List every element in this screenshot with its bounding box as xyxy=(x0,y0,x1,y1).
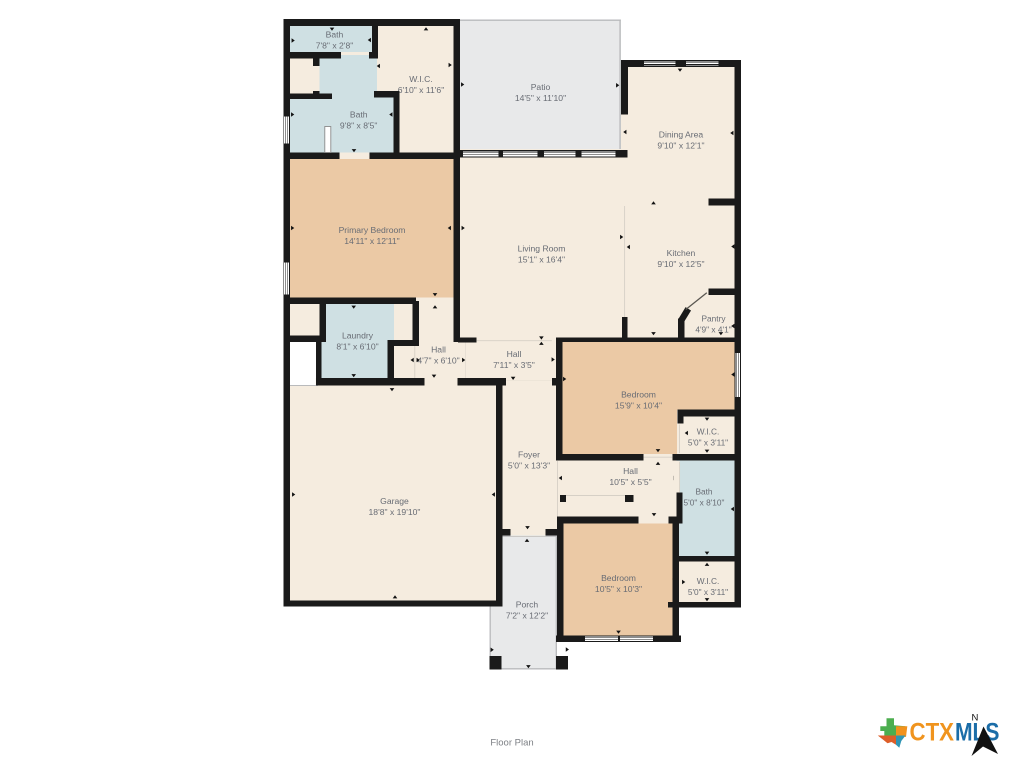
svg-text:CTX: CTX xyxy=(910,719,955,747)
svg-text:5'0" x 13'3": 5'0" x 13'3" xyxy=(508,460,550,470)
svg-text:Bath: Bath xyxy=(326,30,344,40)
svg-text:15'9" x 10'4": 15'9" x 10'4" xyxy=(615,400,662,410)
svg-text:W.I.C.: W.I.C. xyxy=(697,576,720,586)
svg-text:W.I.C.: W.I.C. xyxy=(409,74,432,84)
svg-text:Porch: Porch xyxy=(516,600,539,610)
svg-text:Pantry: Pantry xyxy=(702,314,727,324)
svg-text:7'2" x 12'2": 7'2" x 12'2" xyxy=(506,610,548,620)
svg-text:9'10" x 12'1": 9'10" x 12'1" xyxy=(657,140,704,150)
svg-text:Kitchen: Kitchen xyxy=(667,248,696,258)
svg-text:Bedroom: Bedroom xyxy=(601,573,636,583)
svg-text:18'8" x 19'10": 18'8" x 19'10" xyxy=(369,507,421,517)
svg-text:6'10" x 11'6": 6'10" x 11'6" xyxy=(398,85,445,95)
svg-text:W.I.C.: W.I.C. xyxy=(697,427,720,437)
svg-text:Foyer: Foyer xyxy=(518,450,540,460)
svg-text:Bath: Bath xyxy=(350,110,368,120)
svg-text:Garage: Garage xyxy=(380,496,409,506)
svg-text:4'7" x 6'10": 4'7" x 6'10" xyxy=(417,355,459,365)
svg-text:Primary Bedroom: Primary Bedroom xyxy=(339,225,406,235)
svg-text:5'0" x 3'11": 5'0" x 3'11" xyxy=(688,587,728,597)
svg-text:10'5" x 5'5": 10'5" x 5'5" xyxy=(609,477,651,487)
svg-text:9'8" x 8'5": 9'8" x 8'5" xyxy=(340,120,378,130)
svg-text:4'9" x 4'1": 4'9" x 4'1" xyxy=(695,324,731,334)
svg-text:Hall: Hall xyxy=(431,345,446,355)
svg-text:9'10" x 12'5": 9'10" x 12'5" xyxy=(657,259,704,269)
svg-text:Laundry: Laundry xyxy=(342,331,374,341)
svg-text:5'0" x 8'10": 5'0" x 8'10" xyxy=(684,497,725,507)
svg-text:8'1" x 6'10": 8'1" x 6'10" xyxy=(336,341,378,351)
svg-text:14'11" x 12'11": 14'11" x 12'11" xyxy=(344,236,399,246)
svg-text:Patio: Patio xyxy=(531,82,551,92)
svg-text:Bath: Bath xyxy=(695,487,712,497)
svg-text:Hall: Hall xyxy=(507,349,522,359)
svg-text:Living Room: Living Room xyxy=(518,244,566,254)
svg-text:N: N xyxy=(972,713,979,724)
svg-text:Dining Area: Dining Area xyxy=(659,130,704,140)
svg-text:5'0" x 3'11": 5'0" x 3'11" xyxy=(688,437,728,447)
svg-text:15'1" x 16'4": 15'1" x 16'4" xyxy=(518,254,565,264)
svg-text:10'5" x 10'3": 10'5" x 10'3" xyxy=(595,584,642,594)
svg-text:7'11" x 3'5": 7'11" x 3'5" xyxy=(493,360,535,370)
svg-text:7'8" x 2'8": 7'8" x 2'8" xyxy=(316,40,354,50)
svg-text:14'5" x 11'10": 14'5" x 11'10" xyxy=(515,93,566,103)
svg-text:Floor Plan: Floor Plan xyxy=(490,738,533,749)
svg-text:Bedroom: Bedroom xyxy=(621,390,656,400)
svg-text:Hall: Hall xyxy=(623,466,638,476)
